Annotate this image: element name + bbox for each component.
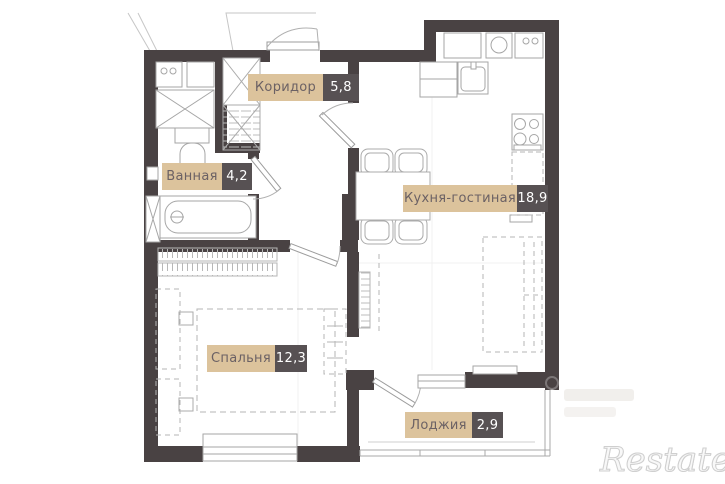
wardrobe-rail — [158, 248, 277, 261]
exterior-line — [128, 13, 150, 51]
nightstand — [179, 398, 193, 411]
wall-loggia-corner — [346, 370, 374, 390]
fridge — [444, 33, 481, 58]
wall-bedroom-right — [347, 252, 359, 337]
nightstand — [179, 312, 193, 325]
key-watermark — [546, 377, 634, 420]
ghost-text-bar — [564, 407, 616, 417]
floorplan-canvas: Коридор 5,8 Ванная 4,2 Кухня-гостиная 18… — [0, 0, 725, 484]
wardrobe-rail — [158, 263, 277, 276]
exterior-line — [138, 13, 157, 51]
kitchen-door-arc — [322, 103, 353, 115]
room-area-badge: 2,9 — [472, 412, 503, 438]
balcony-door-leaf — [373, 378, 416, 407]
dresser-dashed — [156, 379, 180, 435]
room-label-bathroom: Ванная 4,2 — [162, 163, 252, 190]
room-name: Ванная — [162, 163, 222, 190]
bedroom-door-leaf — [289, 244, 337, 267]
wall-top-right — [424, 20, 559, 32]
room-area-badge: 5,8 — [323, 74, 359, 101]
room-label-kitchen-living: Кухня-гостиная 18,9 — [403, 185, 548, 212]
bath-cabinet — [187, 62, 214, 87]
room-area-badge: 4,2 — [222, 163, 252, 190]
room-label-corridor: Коридор 5,8 — [248, 74, 359, 101]
ghost-text-bar — [564, 389, 634, 401]
room-label-bedroom: Спальня 12,3 — [207, 345, 307, 372]
corridor-fixtures — [223, 58, 260, 150]
corner-cabinet — [515, 33, 543, 58]
bedroom-window-sill — [203, 434, 297, 447]
toilet-cistern — [175, 128, 209, 143]
room-name: Коридор — [248, 74, 323, 101]
room-name: Лоджия — [405, 412, 472, 438]
hob-controls — [514, 145, 541, 150]
wall-bedroom-top-stub — [340, 240, 358, 252]
bedroom-furniture — [156, 248, 346, 435]
sink-faucet — [471, 62, 476, 69]
room-label-loggia: Лоджия 2,9 — [405, 412, 503, 438]
dresser-dashed — [156, 289, 180, 369]
wall-bedroom-bottom-right — [297, 446, 360, 462]
bedroom-door-arc — [337, 246, 340, 264]
room-name: Спальня — [207, 345, 275, 372]
tv-stand — [359, 272, 370, 328]
washing-machine — [156, 62, 182, 87]
counter-end — [510, 215, 532, 222]
bathroom-door-leaf — [251, 156, 281, 191]
wall-bedroom-bottom-left — [144, 446, 203, 462]
radiator — [473, 366, 517, 374]
room-area-badge: 12,3 — [275, 345, 307, 372]
room-name: Кухня-гостиная — [403, 185, 517, 212]
kitchen-door-leaf — [319, 112, 354, 147]
sofa-dashed — [483, 237, 542, 352]
wall-top-mid — [320, 50, 434, 62]
entrance-door-leaf — [267, 42, 319, 50]
brand-watermark: Restate — [600, 440, 725, 480]
floorplan-drawing — [0, 0, 725, 484]
room-area-badge: 18,9 — [517, 185, 548, 212]
washbasin — [147, 167, 158, 180]
